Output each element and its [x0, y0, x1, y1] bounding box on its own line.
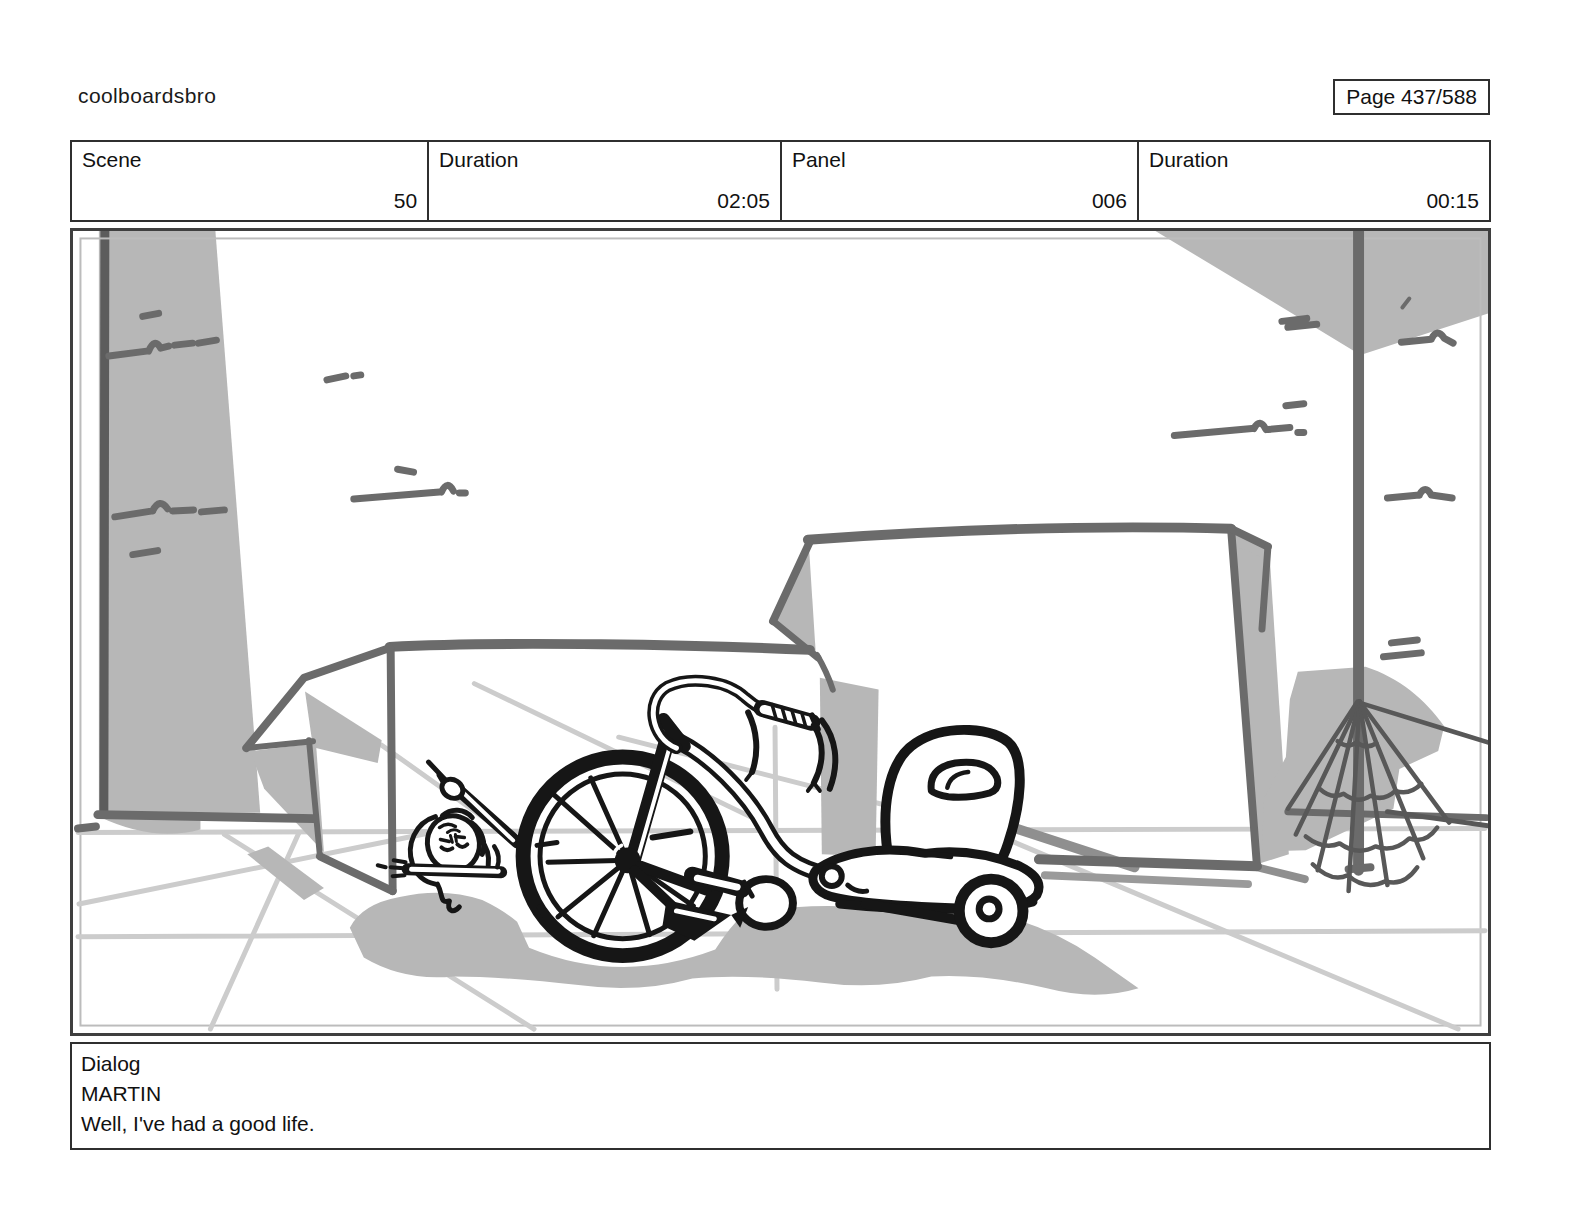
dialog-character: MARTIN — [81, 1079, 1480, 1109]
meta-value: 02:05 — [717, 189, 770, 213]
app-title: coolboardsbro — [78, 84, 216, 108]
meta-value: 006 — [1092, 189, 1127, 213]
metadata-table: Scene 50 Duration 02:05 Panel 006 Durati… — [70, 140, 1491, 222]
dialog-label: Dialog — [81, 1049, 1480, 1079]
meta-label: Panel — [792, 148, 1127, 172]
meta-value: 00:15 — [1426, 189, 1479, 213]
dialog-box: Dialog MARTIN Well, I've had a good life… — [70, 1042, 1491, 1150]
page-indicator: Page 437/588 — [1333, 79, 1490, 115]
meta-cell-panel-duration: Duration 00:15 — [1139, 142, 1489, 220]
storyboard-frame — [70, 228, 1491, 1036]
meta-label: Scene — [82, 148, 417, 172]
meta-label: Duration — [1149, 148, 1479, 172]
meta-label: Duration — [439, 148, 770, 172]
meta-value: 50 — [394, 189, 417, 213]
storyboard-page: coolboardsbro Page 437/588 Scene 50 Dura… — [0, 0, 1584, 1224]
storyboard-sketch — [73, 231, 1488, 1033]
dialog-line: Well, I've had a good life. — [81, 1109, 1480, 1139]
meta-cell-panel: Panel 006 — [782, 142, 1139, 220]
fallen-person — [378, 762, 517, 911]
meta-cell-scene-duration: Duration 02:05 — [429, 142, 782, 220]
big-wheel-tricycle — [523, 681, 1039, 956]
meta-cell-scene: Scene 50 — [72, 142, 429, 220]
